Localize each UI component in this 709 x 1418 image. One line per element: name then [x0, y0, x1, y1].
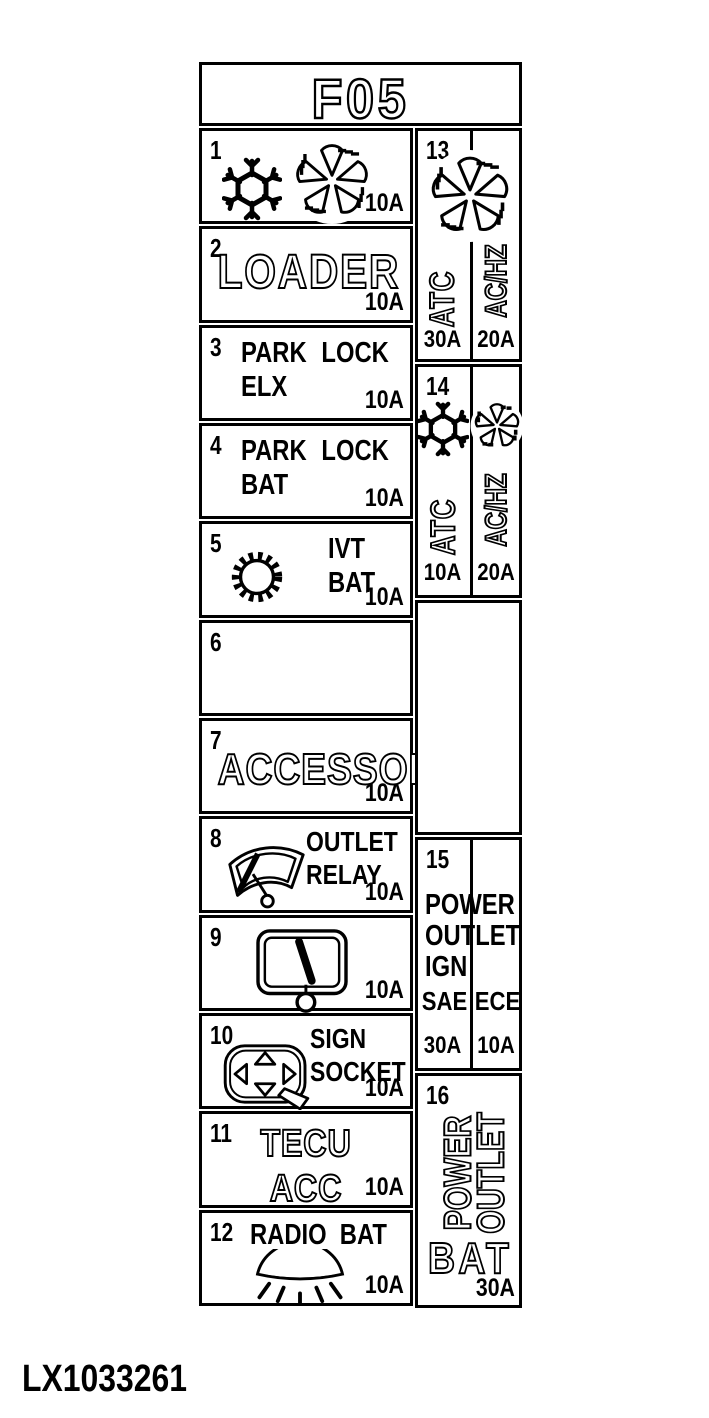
amp-rating: 20A [475, 559, 518, 587]
fan-icon [423, 149, 517, 243]
fan-icon [288, 137, 376, 225]
amp-rating: 10A [365, 288, 404, 317]
title-cell: F05 [199, 62, 522, 126]
empty-cell [415, 600, 522, 835]
fuse-cell-16: 16 POWER OUTLET BAT 30A [415, 1073, 522, 1308]
snowflake-icon [222, 157, 282, 221]
amp-rating: 10A [422, 559, 464, 587]
fuse-cell-15: 15 POWER OUTLET IGN SAE ECE 30A 10A [415, 837, 522, 1071]
fuse-label: AC/HZ [480, 473, 514, 546]
fuse-number: 3 [210, 332, 222, 363]
fuse-number: 4 [210, 430, 222, 461]
fuse-cell-1: 1 [199, 128, 413, 224]
fuse-cell-12: 12 RADIO BAT 10A [199, 1210, 413, 1306]
fuse-cell-9: 9 10A [199, 915, 413, 1011]
amp-rating: 10A [365, 1074, 404, 1103]
amp-rating: 10A [365, 1271, 404, 1300]
amp-rating: 10A [365, 189, 404, 218]
snowflake-icon [417, 401, 469, 457]
fuse-label: AC/HZ [480, 244, 514, 317]
fuse-label: POWER OUTLET IGN [425, 890, 520, 983]
fuse-cell-4: 4 PARK LOCK BAT 10A [199, 423, 413, 519]
amp-rating: 10A [365, 484, 404, 513]
fuse-label: ATC [424, 271, 463, 327]
amp-rating: 10A [365, 386, 404, 415]
fuse-cell-10: 10 SIGN SOCKET 10A [199, 1013, 413, 1109]
fuse-number: 15 [426, 844, 449, 875]
fuse-number: 14 [426, 371, 449, 402]
gear-icon [226, 546, 288, 608]
fuse-cell-13: 13 ATC AC/HZ 30A 20A [415, 128, 522, 362]
fuse-cell-11: 11 TECU ACC 10A [199, 1111, 413, 1208]
fuse-number: 6 [210, 627, 222, 658]
amp-rating: 20A [475, 326, 518, 354]
standard-label: SAE [422, 986, 465, 1017]
mirror-adjust-icon [222, 1038, 316, 1110]
standard-label: ECE [475, 986, 518, 1017]
amp-rating: 10A [475, 1032, 518, 1060]
amp-rating: 10A [365, 779, 404, 808]
amp-rating: 10A [365, 1173, 404, 1202]
fuse-label: ATC [425, 499, 464, 555]
fuse-cell-5: 5 IVT BAT 10A [199, 521, 413, 618]
amp-rating: 30A [422, 326, 464, 354]
figure-id: LX1033261 [22, 1358, 187, 1401]
amp-rating: 30A [476, 1274, 515, 1303]
fuse-number: 12 [210, 1217, 233, 1248]
diagram-title: F05 [218, 66, 503, 131]
fuse-cell-8: 8 OUTLET RELAY 10A [199, 816, 413, 913]
fuse-number: 1 [210, 135, 222, 166]
fuse-number: 5 [210, 528, 222, 559]
amp-rating: 30A [422, 1032, 464, 1060]
fuse-cell-6: 6 [199, 620, 413, 716]
fuse-cell-14: 14 [415, 364, 522, 598]
fuse-cell-3: 3 PARK LOCK ELX 10A [199, 325, 413, 421]
fuse-label: OUTLET [471, 1112, 514, 1234]
fuse-cell-7: 7 ACCESSORY 10A [199, 718, 413, 814]
rear-wiper-icon [254, 928, 350, 1016]
fuse-number: 16 [426, 1080, 449, 1111]
fuse-cell-2: 2 LOADER 10A [199, 226, 413, 323]
fuse-box-diagram: F05 1 [0, 0, 709, 1418]
lamp-icon [252, 1249, 348, 1305]
fuse-number: 8 [210, 823, 222, 854]
fuse-number: 9 [210, 922, 222, 953]
amp-rating: 10A [365, 878, 404, 907]
amp-rating: 10A [365, 976, 404, 1005]
fan-icon [470, 399, 524, 453]
front-wiper-icon [224, 839, 309, 915]
fuse-label: RADIO BAT [250, 1219, 387, 1252]
amp-rating: 10A [365, 583, 404, 612]
